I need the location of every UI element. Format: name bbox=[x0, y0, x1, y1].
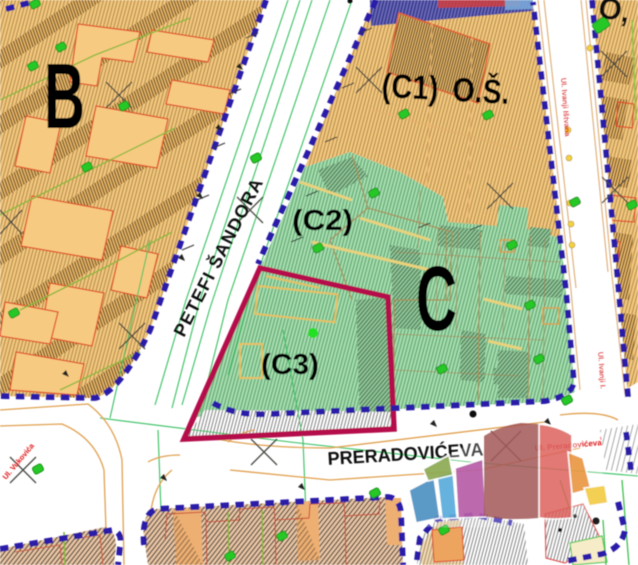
svg-text:O.Š.: O.Š. bbox=[452, 70, 511, 112]
svg-text:(C2): (C2) bbox=[292, 205, 353, 237]
svg-text:B: B bbox=[44, 44, 85, 148]
svg-text:C: C bbox=[416, 248, 457, 350]
svg-text:(C3): (C3) bbox=[261, 349, 319, 381]
svg-text:(C1): (C1) bbox=[381, 67, 440, 108]
